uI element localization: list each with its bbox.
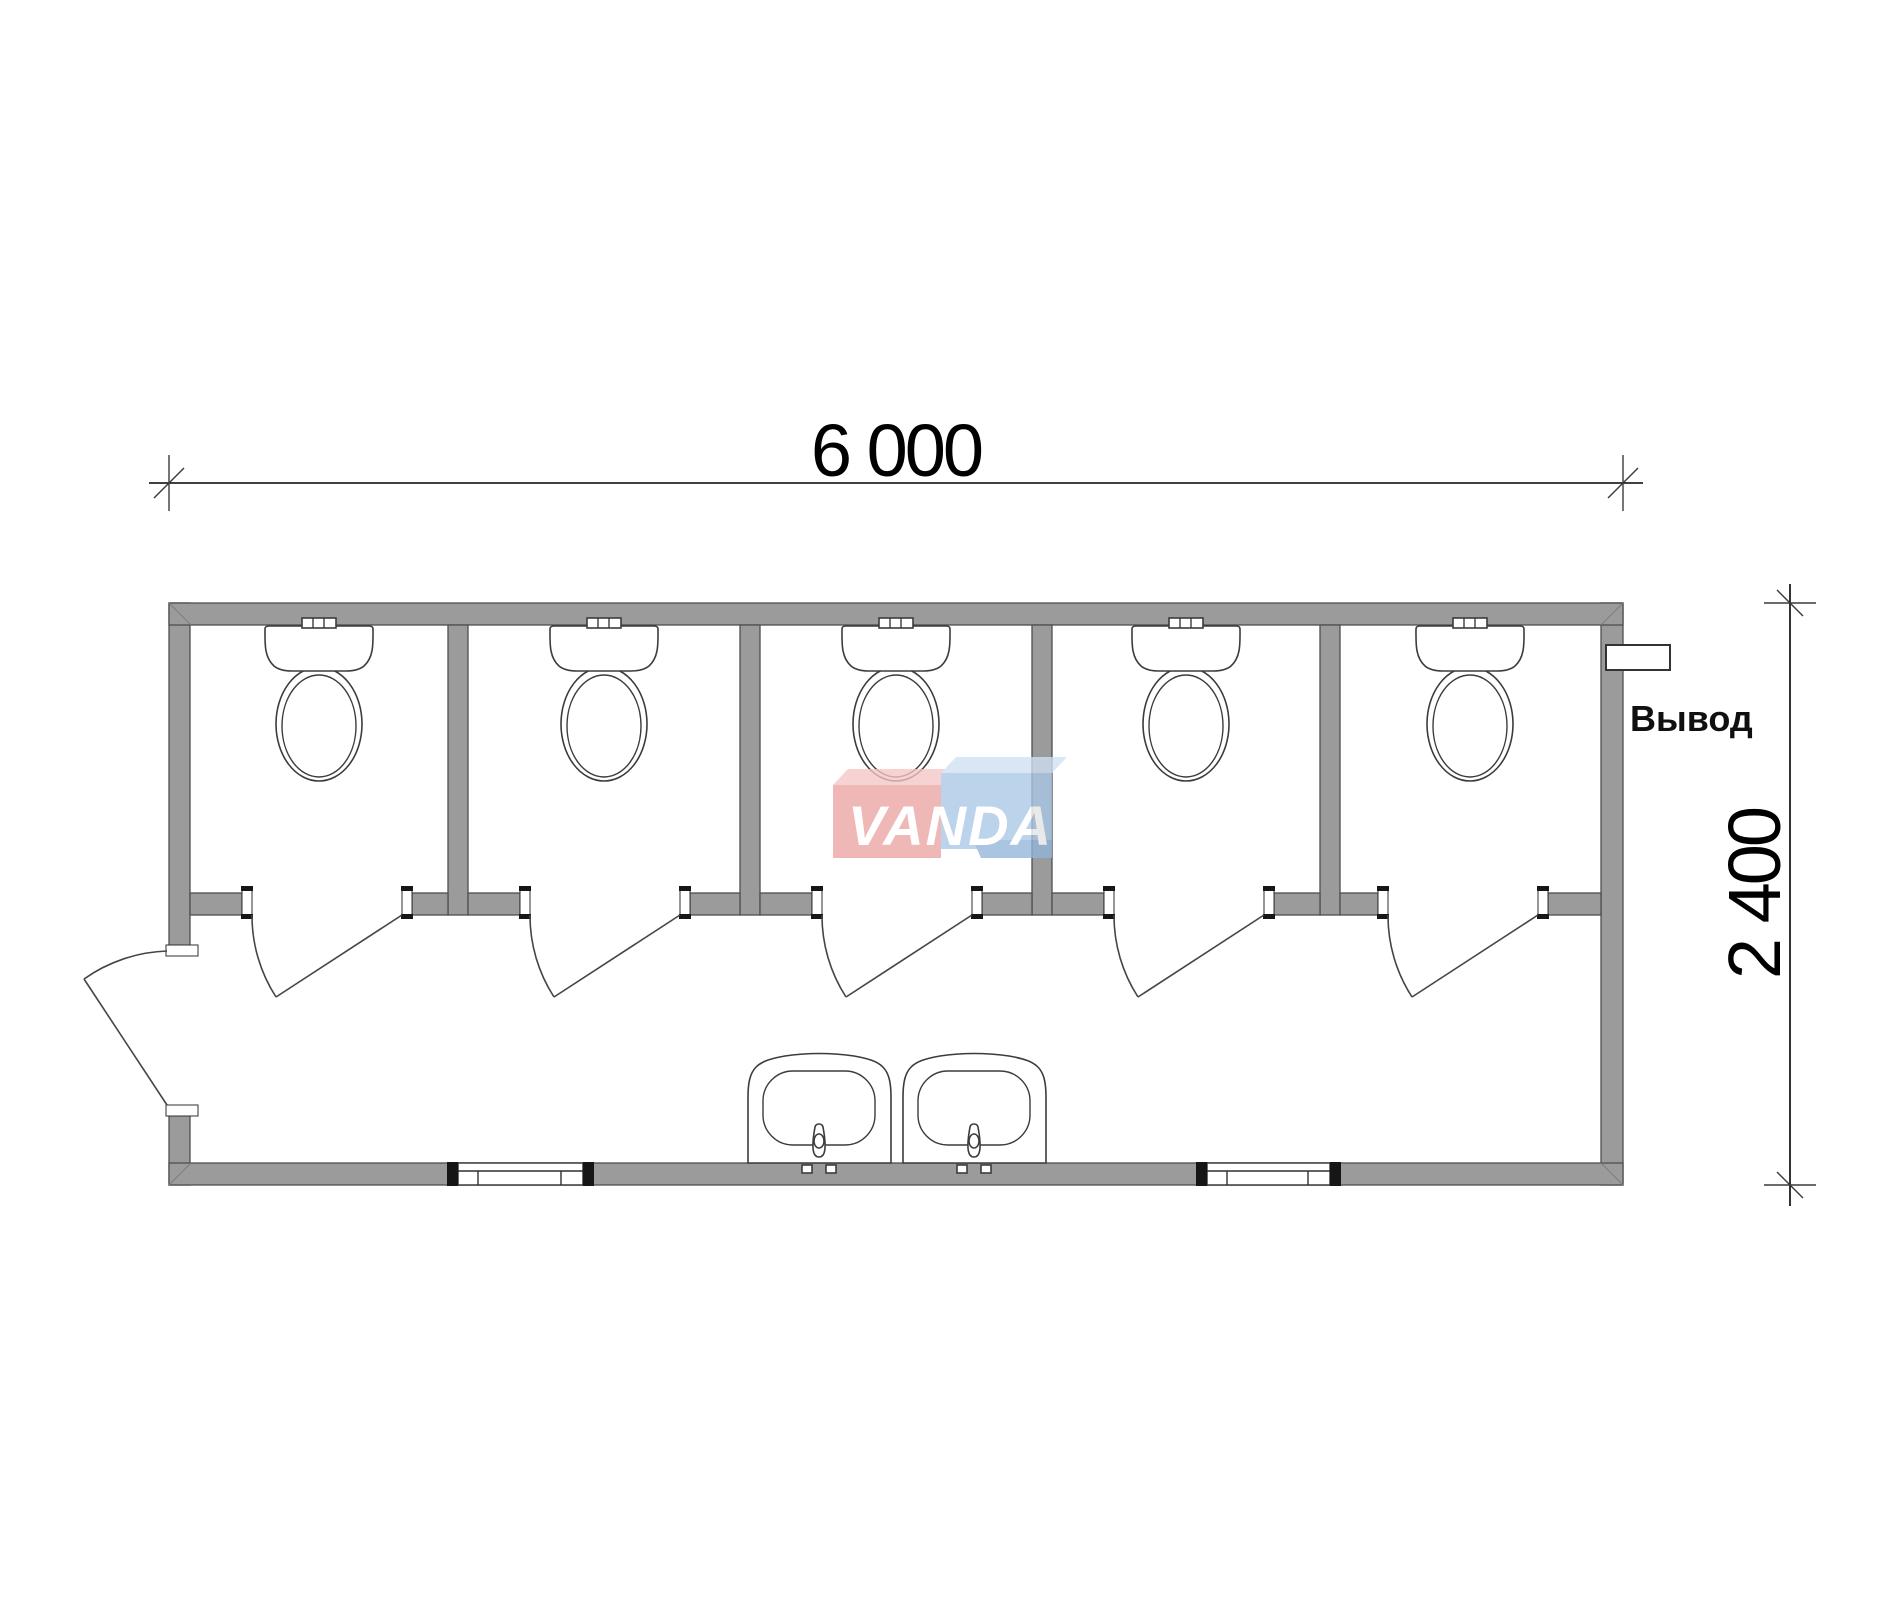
jamb xyxy=(811,886,823,919)
floor-plan-page: 6 000 2 400 xyxy=(0,0,1899,1617)
dimension-height: 2 400 xyxy=(1713,584,1816,1206)
stall-door-4 xyxy=(1114,915,1264,997)
window-2 xyxy=(1196,1162,1341,1186)
stall-door-1 xyxy=(252,915,402,997)
jamb xyxy=(519,886,531,919)
outlet-label: Вывод xyxy=(1630,698,1753,739)
jamb xyxy=(241,886,253,919)
partition-4 xyxy=(1320,625,1340,915)
jamb xyxy=(1377,886,1389,919)
washbasin-1 xyxy=(748,1054,891,1174)
outlet: Вывод xyxy=(1606,645,1753,739)
jamb xyxy=(971,886,983,919)
stall-door-5 xyxy=(1388,915,1538,997)
dimension-width: 6 000 xyxy=(149,409,1643,511)
jamb xyxy=(679,886,691,919)
watermark-logo: VANDA xyxy=(833,757,1067,858)
toilet-3 xyxy=(842,618,950,781)
jamb xyxy=(1263,886,1275,919)
washbasin-2 xyxy=(903,1054,1046,1174)
jamb xyxy=(1103,886,1115,919)
entry-door xyxy=(84,945,198,1116)
partition-2 xyxy=(740,625,760,915)
partition-1 xyxy=(448,625,468,915)
toilet-2 xyxy=(550,618,658,781)
jamb xyxy=(401,886,413,919)
outlet-connector xyxy=(1606,645,1670,670)
jamb xyxy=(1537,886,1549,919)
dimension-height-label: 2 400 xyxy=(1713,808,1796,979)
toilet-5 xyxy=(1416,618,1524,781)
floor-plan-canvas: 6 000 2 400 xyxy=(0,0,1899,1617)
stall-door-2 xyxy=(530,915,680,997)
toilet-4 xyxy=(1132,618,1240,781)
watermark-text: VANDA xyxy=(848,794,1053,857)
toilet-1 xyxy=(265,618,373,781)
dimension-width-label: 6 000 xyxy=(811,409,982,492)
stall-door-3 xyxy=(822,915,972,997)
window-1 xyxy=(447,1162,594,1186)
